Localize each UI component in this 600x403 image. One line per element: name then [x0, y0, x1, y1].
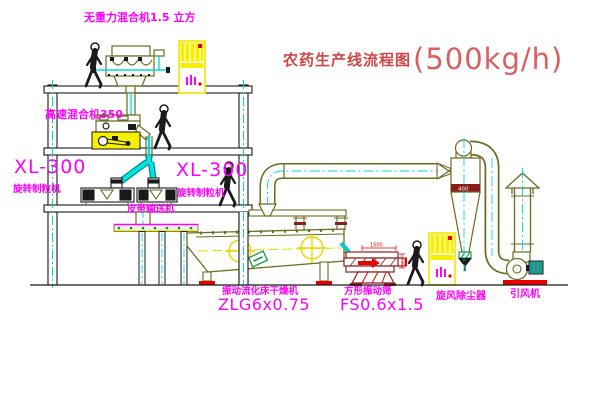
- fan-base: [503, 280, 547, 285]
- title-text: 农药生产线流程图: [283, 49, 411, 70]
- label-cyclone: 旋风除尘器: [436, 292, 486, 302]
- label-granulator-left-model: XL-300: [14, 158, 86, 177]
- label-belt-conveyor: 皮带输送机: [127, 205, 175, 215]
- exhaust-duct-drawing: [259, 163, 452, 216]
- label-high-speed-mixer: 高速混合机350: [45, 109, 123, 120]
- belt-conveyor-drawing: [114, 225, 198, 286]
- screen-height-dim: 550: [403, 257, 409, 267]
- vibrating-screen-drawing: 1500 550: [341, 243, 409, 287]
- label-fan: 引风机: [510, 290, 540, 300]
- worker-icon: [155, 105, 170, 149]
- label-screen-model: FS0.6x1.5: [340, 297, 424, 313]
- label-granulator-left-name: 旋转制粒机: [13, 185, 61, 195]
- cyclone-drawing: 400: [451, 138, 509, 272]
- label-zero-gravity-mixer: 无重力混合机1.5 立方: [84, 12, 195, 23]
- granulators-drawing: [81, 178, 177, 205]
- control-cabinet-icon-top: [179, 41, 205, 93]
- worker-icon: [408, 241, 423, 285]
- title-capacity: (500kg/h): [413, 42, 563, 76]
- screen-length-dim: 1500: [370, 243, 383, 249]
- building-right-wall-lower: [239, 212, 248, 285]
- label-granulator-right-name: 旋转制粒机: [177, 189, 225, 199]
- zero-gravity-mixer-drawing: [92, 46, 170, 115]
- building-top-slab: [44, 86, 252, 93]
- fan-drawing: [503, 252, 547, 285]
- worker-icon: [86, 43, 101, 87]
- exhaust-stack-drawing: [506, 168, 539, 258]
- label-granulator-right-model: XL-300: [176, 161, 248, 180]
- control-cabinet-icon-right: [429, 233, 455, 285]
- diagram-title: 农药生产线流程图 (500kg/h): [283, 42, 563, 76]
- flow-diagram-canvas: 400: [0, 0, 600, 403]
- fluid-bed-dryer-drawing: [187, 210, 352, 285]
- label-dryer-model: ZLG6x0.75: [218, 297, 310, 313]
